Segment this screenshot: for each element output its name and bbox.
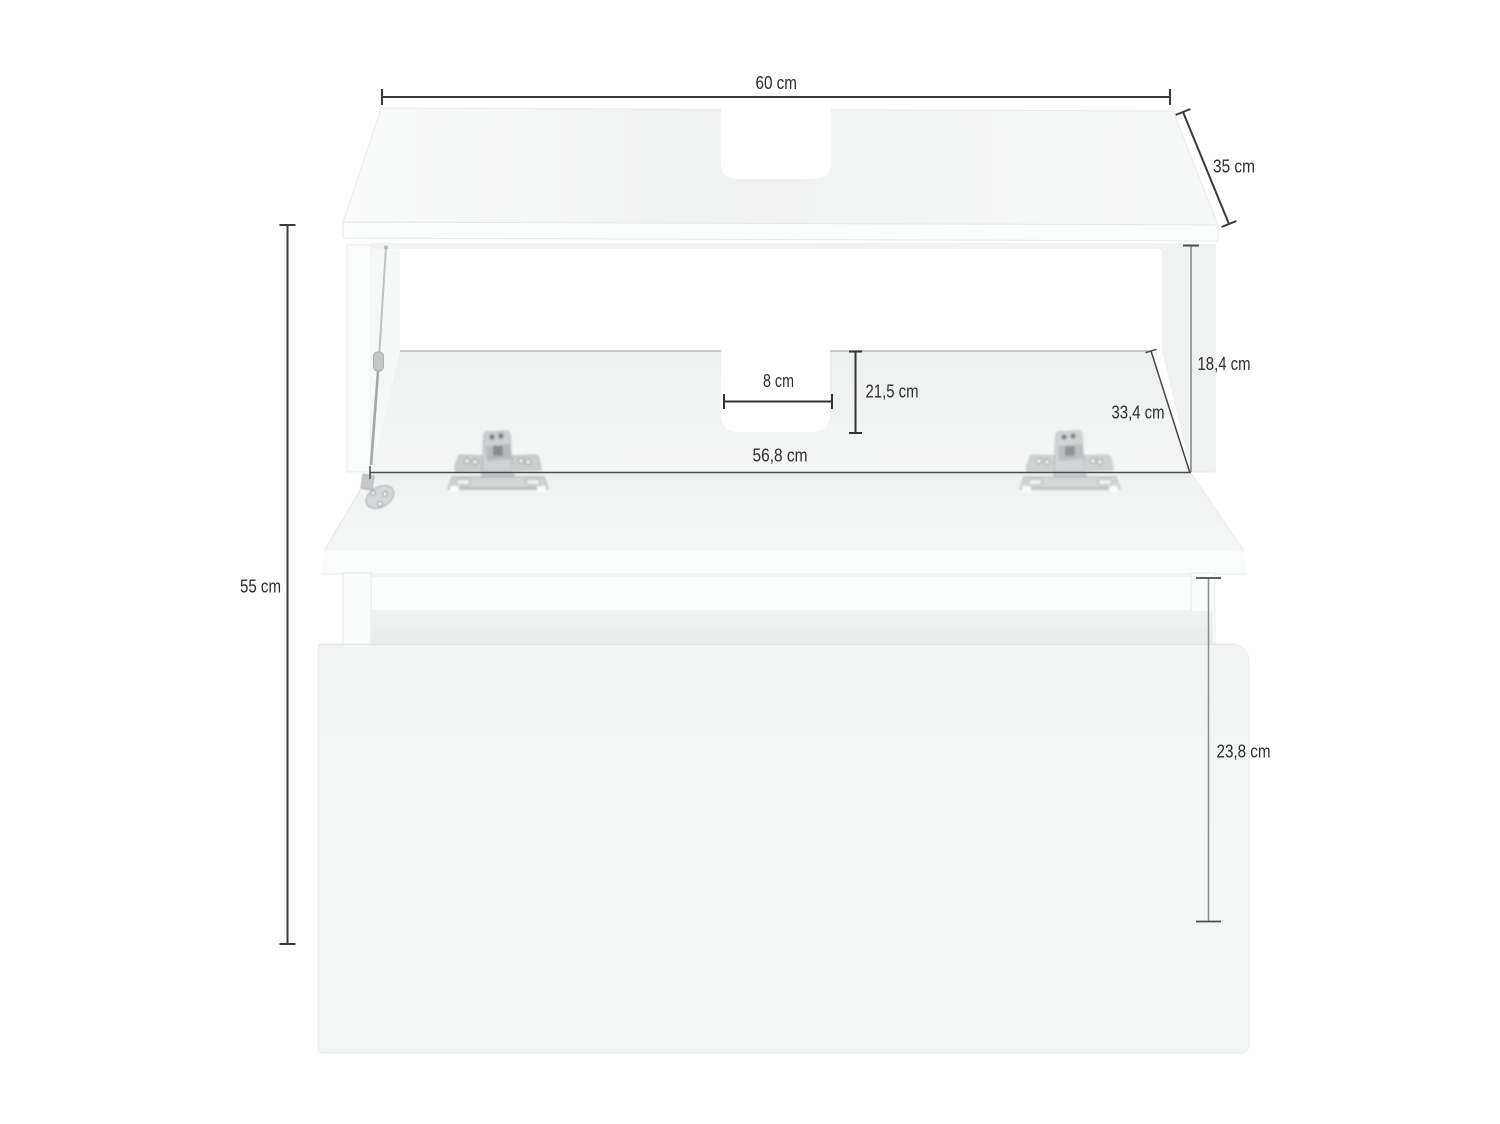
svg-text:21,5 cm: 21,5 cm — [866, 381, 919, 402]
svg-text:60 cm: 60 cm — [756, 72, 798, 93]
svg-text:33,4 cm: 33,4 cm — [1112, 402, 1165, 423]
svg-text:8 cm: 8 cm — [763, 370, 794, 391]
svg-text:56,8 cm: 56,8 cm — [753, 445, 808, 466]
svg-text:18,4 cm: 18,4 cm — [1198, 353, 1251, 374]
svg-text:23,8 cm: 23,8 cm — [1217, 741, 1271, 762]
svg-text:55 cm: 55 cm — [240, 576, 281, 597]
svg-text:35 cm: 35 cm — [1213, 156, 1255, 177]
